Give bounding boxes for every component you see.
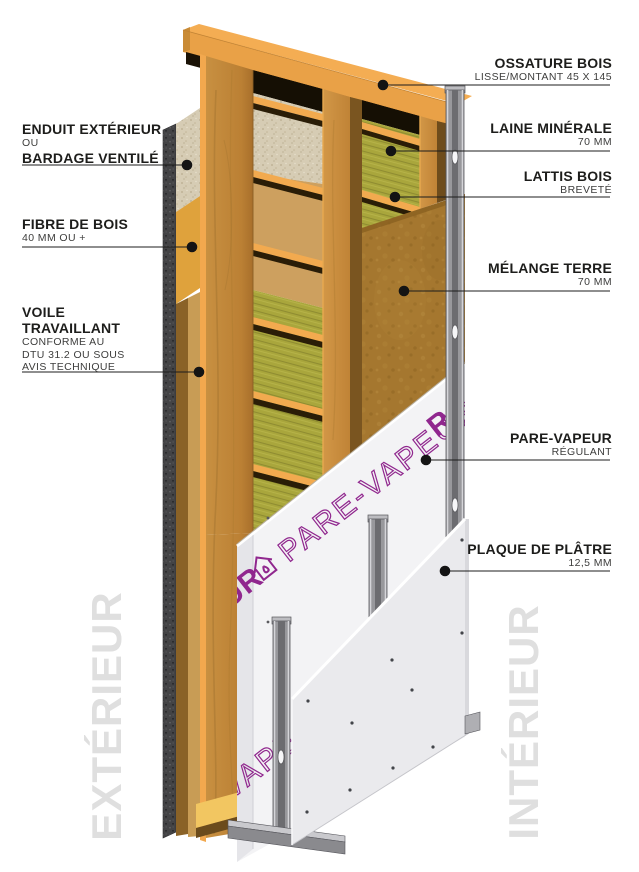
watermark-interieur: INTÉRIEUR: [500, 604, 548, 839]
furring-channel-right: [445, 86, 465, 539]
label-voile-travaillant: VOILE TRAVAILLANT CONFORME AU DTU 31.2 O…: [22, 304, 252, 374]
label-melange-terre: MÉLANGE TERRE 70 MM: [312, 260, 612, 289]
label-title: LATTIS BOIS: [312, 168, 612, 184]
label-title: TRAVAILLANT: [22, 320, 252, 336]
watermark-exterieur: EXTÉRIEUR: [83, 591, 131, 840]
wood-fibre-edge: [176, 298, 188, 836]
label-title: BARDAGE VENTILÉ: [22, 150, 252, 166]
label-title: FIBRE DE BOIS: [22, 216, 252, 232]
runner-end-tab: [465, 712, 480, 734]
label-subtitle: CONFORME AU: [22, 336, 252, 349]
label-subtitle: 70 MM: [312, 136, 612, 149]
label-ossature-bois: OSSATURE BOIS LISSE/MONTANT 45 X 145: [312, 55, 612, 84]
label-enduit-exterieur: ENDUIT EXTÉRIEUR OU BARDAGE VENTILÉ: [22, 121, 252, 166]
label-title: OSSATURE BOIS: [312, 55, 612, 71]
label-subtitle: BREVETÉ: [312, 184, 612, 197]
label-subtitle: LISSE/MONTANT 45 X 145: [312, 71, 612, 84]
label-subtitle: 12,5 MM: [312, 557, 612, 570]
label-subtitle: 40 MM OU +: [22, 232, 252, 245]
label-title: ENDUIT EXTÉRIEUR: [22, 121, 252, 137]
label-laine-minerale: LAINE MINÉRALE 70 MM: [312, 120, 612, 149]
label-subtitle: 70 MM: [312, 276, 612, 289]
label-subtitle: RÉGULANT: [312, 446, 612, 459]
label-title: PARE-VAPEUR: [312, 430, 612, 446]
furring-channel-left: [272, 617, 291, 831]
label-plaque-de-platre: PLAQUE DE PLÂTRE 12,5 MM: [312, 541, 612, 570]
label-title: PLAQUE DE PLÂTRE: [312, 541, 612, 557]
channel-hole: [452, 325, 458, 339]
wall-cutaway-diagram: EUR PARE-VAPEUR R VAPE: [0, 0, 639, 872]
label-subtitle: AVIS TECHNIQUE: [22, 361, 252, 374]
label-pare-vapeur: PARE-VAPEUR RÉGULANT: [312, 430, 612, 459]
label-subtitle: DTU 31.2 OU SOUS: [22, 349, 252, 362]
channel-hole: [452, 498, 458, 512]
channel-hole: [278, 750, 284, 764]
label-title: LAINE MINÉRALE: [312, 120, 612, 136]
channel-hole: [452, 150, 458, 164]
label-title: VOILE: [22, 304, 252, 320]
label-title: MÉLANGE TERRE: [312, 260, 612, 276]
label-lattis-bois: LATTIS BOIS BREVETÉ: [312, 168, 612, 197]
label-fibre-de-bois: FIBRE DE BOIS 40 MM OU +: [22, 216, 252, 245]
label-subtitle: OU: [22, 137, 252, 150]
